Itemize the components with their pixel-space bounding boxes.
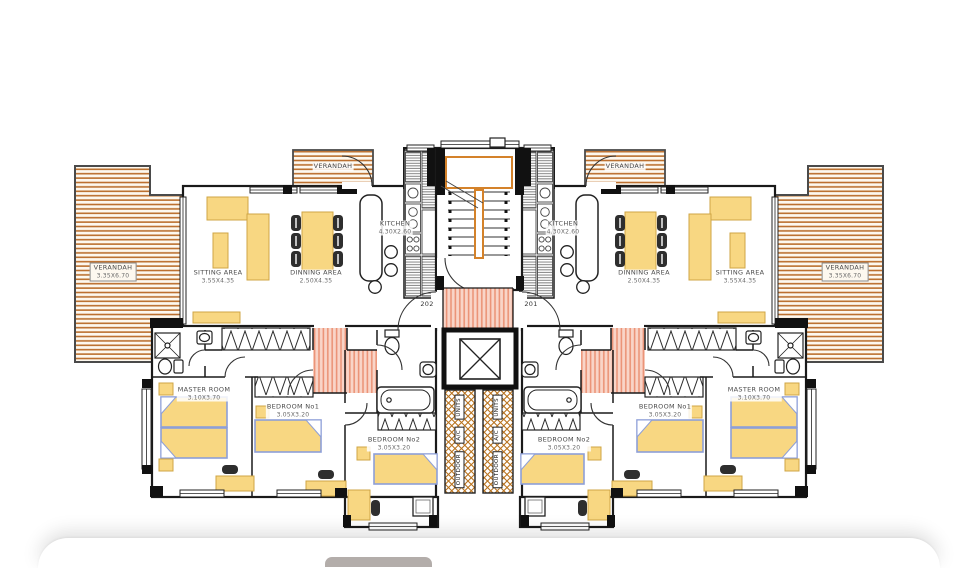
- ac-strip-right: UNITS A/C OUTDOOR: [483, 390, 513, 493]
- bottom-sheet-button[interactable]: [325, 557, 432, 567]
- entry-hatch: [443, 288, 513, 328]
- stair-landing: [446, 157, 512, 188]
- room-label-dinning-left: DINNING AREA 2.50X4.35: [289, 270, 343, 285]
- ac-label-ac: A/C: [455, 427, 465, 444]
- left-unit-plan: [75, 145, 441, 530]
- room-label-kitchen-left: KITCHEN 4.30X2.60: [378, 221, 413, 236]
- ac-label-ac: A/C: [493, 427, 503, 444]
- ac-label-units: UNITS: [493, 395, 503, 420]
- room-label-master-left: MASTER ROOM 3.10X3.70: [177, 387, 232, 402]
- room-label-sitting-right: SITTING AREA 3.55X4.35: [715, 270, 766, 285]
- room-label-sitting-left: SITTING AREA 3.55X4.35: [193, 270, 244, 285]
- ac-strip-left: UNITS A/C OUTDOOR: [445, 390, 475, 493]
- room-label-bedroom2-right: BEDROOM No2 3.05X3.20: [537, 437, 591, 452]
- ac-label-units: UNITS: [455, 395, 465, 420]
- unit-number-201: 201: [523, 301, 538, 309]
- ac-label-outdoor: OUTDOOR: [493, 451, 503, 488]
- ac-label-outdoor: OUTDOOR: [455, 451, 465, 488]
- room-label-verandah-right: VERANDAH 3.35X6.70: [822, 263, 869, 282]
- room-label-bedroom2-left: BEDROOM No2 3.05X3.20: [367, 437, 421, 452]
- unit-number-202: 202: [419, 301, 434, 309]
- room-label-master-right: MASTER ROOM 3.10X3.70: [727, 387, 782, 402]
- room-label-bedroom1-right: BEDROOM No1 3.05X3.20: [638, 404, 692, 419]
- right-unit-plan: [517, 145, 883, 530]
- room-label-verandah-left: VERANDAH 3.35X6.70: [90, 263, 137, 282]
- room-label-dinning-right: DINNING AREA 2.50X4.35: [617, 270, 671, 285]
- floor-plan-canvas: VERANDAH 3.35X6.70 VERANDAH SITTING AREA…: [0, 0, 974, 564]
- room-label-kitchen-right: KITCHEN 4.30X2.60: [546, 221, 581, 236]
- room-label-verandah-top-right: VERANDAH: [605, 163, 646, 171]
- room-label-bedroom1-left: BEDROOM No1 3.05X3.20: [266, 404, 320, 419]
- room-label-verandah-top-left: VERANDAH: [313, 163, 354, 171]
